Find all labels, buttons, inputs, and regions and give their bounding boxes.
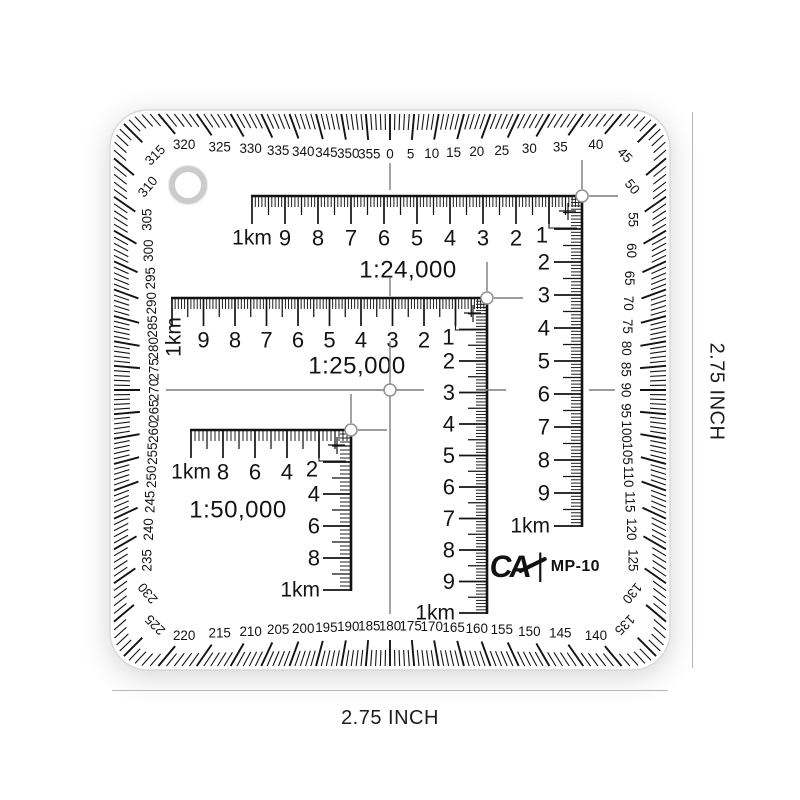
degree-label: 115	[622, 491, 637, 512]
degree-label: 170	[421, 619, 443, 634]
degree-label: 200	[292, 621, 314, 636]
ruler-km-label: 6	[538, 382, 550, 407]
degree-label: 190	[337, 619, 359, 634]
degree-label: 320	[173, 137, 195, 152]
ruler-km-label: 3	[477, 226, 489, 251]
ruler-km-label: 5	[323, 328, 335, 353]
degree-label: 355	[358, 146, 380, 161]
ruler-km-label: 7	[260, 328, 272, 353]
degree-tick-minor	[399, 114, 400, 130]
degree-label: 55	[626, 212, 641, 227]
ruler-km-label: 9	[197, 328, 209, 353]
degree-label: 250	[144, 466, 159, 488]
ruler-km-label: 2	[538, 250, 550, 275]
degree-label: 300	[141, 239, 156, 261]
ruler-km-label: 6	[378, 226, 390, 251]
degree-label: 350	[337, 146, 359, 161]
degree-label: 15	[446, 145, 461, 160]
scale-title: 1:24,000	[359, 257, 456, 284]
degree-label: 110	[621, 466, 636, 487]
degree-label: 270	[147, 379, 162, 401]
degree-label: 240	[141, 518, 156, 540]
degree-tick-minor	[380, 650, 381, 666]
ruler-km-label: 5	[443, 443, 455, 468]
ruler-km-label: 4	[444, 226, 456, 251]
logo-divider: |	[537, 550, 544, 581]
ruler-km-label: 8	[217, 460, 229, 485]
ruler-km-label: 1km	[163, 317, 186, 357]
degree-label: 30	[522, 141, 537, 156]
degree-label: 95	[619, 403, 634, 418]
ruler-km-label: 6	[308, 514, 320, 539]
ruler-km-label: 8	[308, 546, 320, 571]
ruler-km-label: 1km	[232, 227, 272, 250]
ruler-km-label: 2	[418, 328, 430, 353]
degree-label: 275	[146, 358, 161, 380]
degree-tick-minor	[114, 399, 130, 400]
degree-label: 220	[173, 628, 195, 643]
ruler-km-label: 4	[308, 482, 320, 507]
degree-label: 340	[292, 144, 314, 159]
degree-label: 295	[143, 267, 158, 289]
degree-label: 35	[553, 139, 568, 154]
product-image-canvas: 1km987654321234567891km1:24,0001km987654…	[0, 0, 800, 800]
degree-label: 245	[143, 491, 158, 513]
ruler-km-label: 6	[443, 475, 455, 500]
ruler-km-label: 3	[386, 328, 398, 353]
degree-label: 160	[466, 621, 488, 636]
degree-tick-minor	[399, 650, 400, 666]
degree-label: 85	[619, 362, 634, 377]
center-index-dot	[384, 384, 396, 396]
degree-label: 290	[144, 292, 159, 314]
ruler-km-label: 7	[443, 506, 455, 531]
dimension-line-right	[692, 112, 693, 668]
degree-label: 65	[622, 271, 637, 286]
ruler-km-label: 2	[510, 226, 522, 251]
degree-label: 60	[624, 243, 639, 258]
corner-index-dot	[481, 292, 493, 304]
degree-label: 105	[620, 442, 635, 464]
ruler-km-label: 9	[443, 569, 455, 594]
degree-label: 215	[209, 626, 231, 641]
lanyard-hole	[169, 166, 208, 205]
degree-label: 165	[442, 620, 464, 635]
ruler-km-label: 3	[538, 283, 550, 308]
degree-label: 145	[549, 626, 571, 641]
degree-label: 10	[424, 146, 439, 161]
degree-label: 305	[139, 209, 154, 231]
degree-label: 140	[585, 628, 607, 643]
degree-label: 255	[145, 442, 160, 464]
degree-label: 280	[146, 337, 161, 359]
model-number: MP-10	[551, 558, 600, 576]
degree-label: 120	[624, 518, 639, 540]
degree-label: 25	[494, 143, 509, 158]
degree-label: 75	[620, 319, 635, 334]
ruler-km-label: 1	[536, 223, 548, 248]
scale-title: 1:50,000	[189, 497, 286, 524]
ruler-km-label: 3	[443, 380, 455, 405]
degree-label: 205	[267, 622, 289, 637]
ruler-km-label: 7	[345, 226, 357, 251]
ruler-km-label: 4	[281, 460, 293, 485]
ruler-km-label: 5	[538, 349, 550, 374]
ruler-km-label: 1km	[510, 515, 550, 538]
corner-index-dot	[345, 424, 357, 436]
degree-label: 185	[358, 619, 380, 634]
degree-label: 195	[315, 620, 337, 635]
degree-label: 100	[619, 421, 634, 443]
ruler-km-label: 1km	[280, 579, 320, 602]
coordinate-scale-tool-graphic: 1km987654321234567891km1:24,0001km987654…	[0, 0, 800, 800]
degree-label: 5	[407, 146, 414, 161]
degree-tick-minor	[114, 380, 130, 381]
dimension-label-bottom: 2.75 INCH	[290, 707, 490, 730]
ruler-km-label: 1km	[171, 461, 211, 484]
degree-label: 325	[209, 139, 231, 154]
degree-tick-minor	[380, 114, 381, 130]
degree-label: 180	[379, 619, 401, 634]
degree-label: 40	[588, 137, 603, 152]
degree-label: 235	[139, 549, 154, 571]
ruler-km-label: 4	[538, 316, 550, 341]
degree-label: 265	[146, 399, 161, 421]
ruler-km-label: 8	[312, 226, 324, 251]
degree-label: 20	[469, 144, 484, 159]
degree-label: 80	[619, 341, 634, 356]
degree-label: 285	[145, 315, 160, 337]
scale-title: 1:25,000	[308, 353, 405, 380]
degree-tick-minor	[650, 399, 666, 400]
ruler-km-label: 5	[411, 226, 423, 251]
ruler-km-label: 8	[538, 448, 550, 473]
degree-label: 345	[315, 145, 337, 160]
ruler-km-label: 8	[229, 328, 241, 353]
ruler-km-label: 7	[538, 415, 550, 440]
dimension-line-bottom	[112, 690, 668, 691]
degree-label: 70	[621, 296, 636, 311]
degree-label: 335	[267, 143, 289, 158]
ruler-km-label: 2	[306, 457, 318, 482]
degree-label: 330	[239, 141, 261, 156]
degree-label: 125	[626, 549, 641, 571]
ruler-km-label: 2	[443, 349, 455, 374]
ruler-km-label: 8	[443, 538, 455, 563]
degree-label: 90	[619, 383, 634, 398]
ruler-km-label: 1	[442, 325, 454, 350]
degree-label: 210	[239, 624, 261, 639]
ruler-km-label: 4	[355, 328, 367, 353]
degree-label: 155	[491, 622, 513, 637]
degree-label: 175	[399, 619, 421, 634]
ruler-km-label: 6	[249, 460, 261, 485]
ruler-km-label: 6	[292, 328, 304, 353]
dimension-label-right: 2.75 INCH	[705, 292, 728, 492]
ruler-km-label: 9	[279, 226, 291, 251]
corner-index-dot	[576, 190, 588, 202]
degree-tick-minor	[650, 380, 666, 381]
degree-label: 260	[146, 421, 161, 443]
ruler-km-label: 9	[538, 481, 550, 506]
hole-ring	[172, 169, 204, 201]
degree-label: 150	[518, 624, 540, 639]
ruler-km-label: 4	[443, 412, 455, 437]
brand-logo: CA | MP-10	[490, 551, 600, 582]
degree-label: 0	[386, 147, 393, 162]
